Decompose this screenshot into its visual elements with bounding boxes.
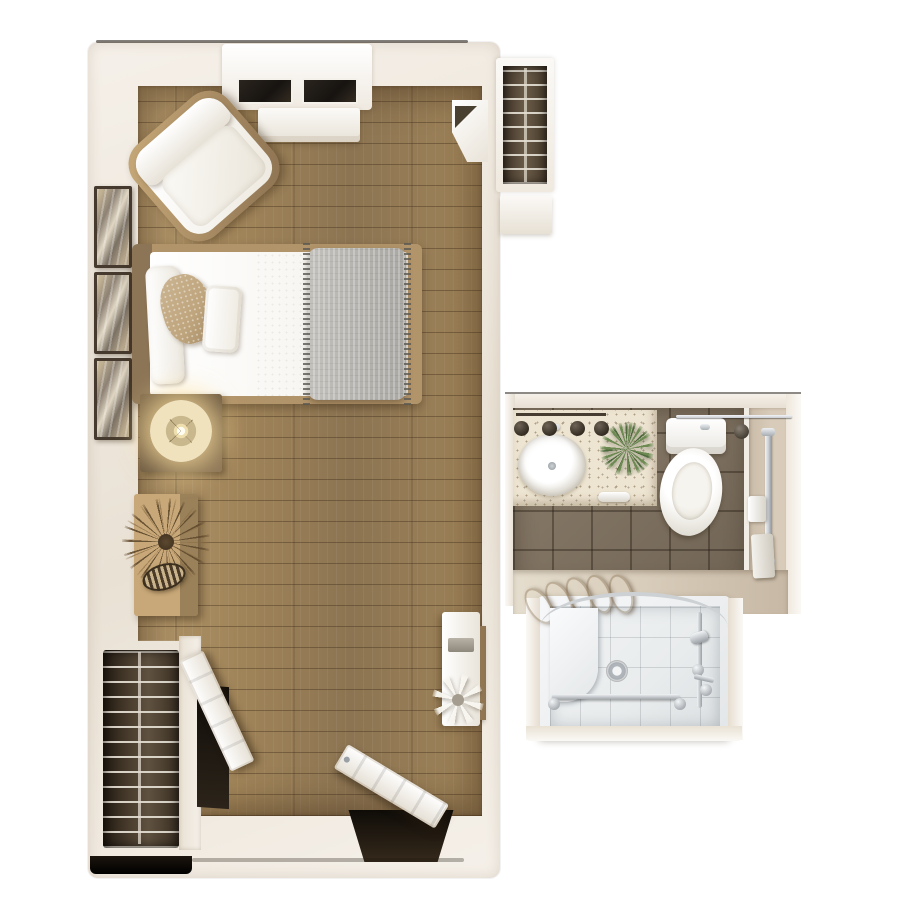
toilet-brush bbox=[734, 424, 749, 439]
shower-grab-bar bbox=[552, 694, 680, 699]
lamp-harp-icon bbox=[150, 400, 212, 462]
hall-wall-stub bbox=[500, 196, 552, 234]
vanity-light-icon bbox=[570, 421, 585, 436]
grab-bar-mount bbox=[761, 428, 775, 436]
pillow bbox=[202, 285, 243, 353]
grab-bar-mount bbox=[548, 698, 560, 710]
closet-wire-shelf-pole bbox=[138, 652, 141, 844]
window-bay bbox=[222, 44, 372, 110]
bed-blanket bbox=[308, 248, 406, 400]
shower-right-wall bbox=[728, 598, 743, 740]
window-console bbox=[258, 108, 360, 142]
wall-art-frame bbox=[94, 358, 132, 440]
window-pane-icon bbox=[237, 78, 293, 104]
bathroom-right-wall bbox=[786, 394, 801, 614]
bedroom-closet-interior bbox=[103, 650, 179, 848]
floor-plan-canvas bbox=[0, 0, 900, 900]
toilet-flush-icon bbox=[700, 424, 710, 430]
grab-bar-mount bbox=[674, 698, 686, 710]
bathroom-bottom-wall bbox=[526, 726, 742, 741]
wall-art-frame bbox=[94, 272, 132, 354]
potted-green-plant bbox=[600, 422, 654, 476]
plant-pot bbox=[158, 534, 174, 550]
shower-drain-icon bbox=[606, 660, 628, 682]
flower-center bbox=[452, 694, 464, 706]
vanity-light-bar bbox=[516, 413, 606, 416]
door-knob-icon bbox=[343, 755, 351, 763]
wall-art-frame bbox=[94, 186, 132, 268]
vanity-light-icon bbox=[542, 421, 557, 436]
window-pane-icon bbox=[302, 78, 358, 104]
toilet-paper-holder bbox=[748, 496, 766, 522]
desk-drawer bbox=[448, 638, 474, 652]
hand-towel bbox=[598, 492, 630, 502]
vanity-light-icon bbox=[514, 421, 529, 436]
towel-bar bbox=[676, 415, 792, 418]
hall-closet-shelf-pole bbox=[524, 68, 527, 182]
shower-control-icon bbox=[700, 684, 712, 696]
bedroom-top-wall-edge bbox=[96, 40, 468, 43]
bottom-wall-edge bbox=[192, 858, 464, 862]
sink-drain-icon bbox=[548, 462, 556, 470]
closet-bottom-shadow bbox=[90, 856, 192, 874]
wall-dispenser bbox=[751, 533, 775, 578]
